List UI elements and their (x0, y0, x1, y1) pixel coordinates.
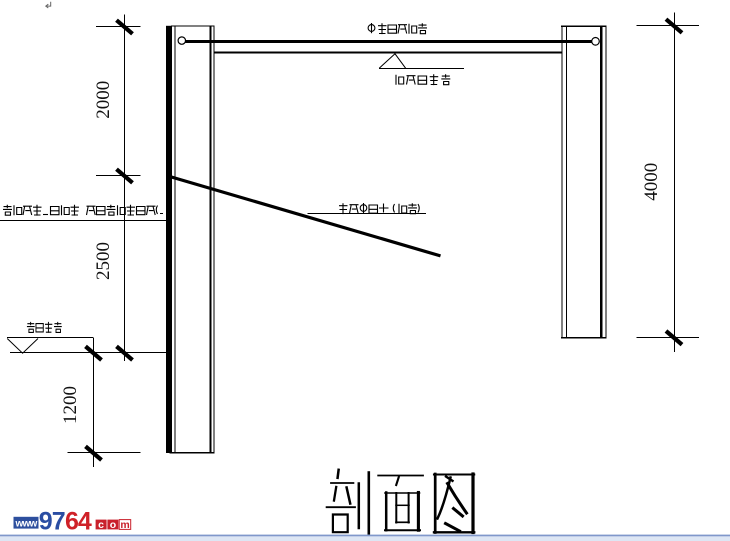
svg-text:1200: 1200 (60, 386, 81, 424)
svg-text:4000: 4000 (641, 163, 662, 201)
svg-text:2000: 2000 (93, 81, 114, 119)
svg-text:m: m (120, 519, 129, 531)
svg-text:www: www (15, 519, 38, 530)
svg-text:o: o (110, 519, 116, 531)
svg-text:64: 64 (65, 508, 92, 536)
svg-text:2500: 2500 (93, 242, 114, 280)
svg-text:c: c (98, 519, 104, 531)
svg-text:97: 97 (39, 508, 65, 536)
